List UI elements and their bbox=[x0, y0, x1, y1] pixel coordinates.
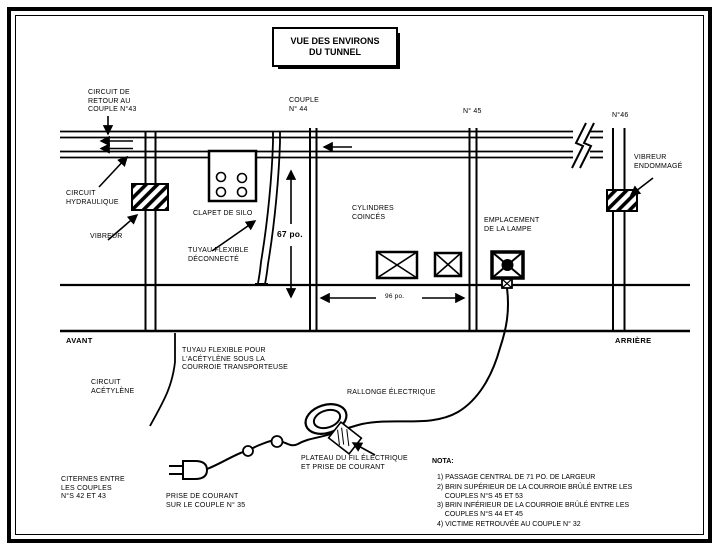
label-arriere: ARRIÈRE bbox=[615, 337, 652, 346]
plug-icon bbox=[169, 461, 207, 479]
label-cylindres-coinces: CYLINDRES COINCÉS bbox=[352, 205, 394, 222]
nota-item-2: 2) BRIN SUPÉRIEUR DE LA COURROIE BRÛLÉ E… bbox=[437, 484, 705, 502]
break-symbol bbox=[572, 123, 594, 168]
label-rallonge-electrique: RALLONGE ÉLECTRIQUE bbox=[347, 389, 436, 398]
label-emplacement-lampe: EMPLACEMENT DE LA LAMPE bbox=[484, 217, 540, 234]
cord-loop-small-1 bbox=[272, 436, 283, 447]
lamp-box bbox=[492, 252, 523, 288]
cylinder-box-1 bbox=[377, 252, 417, 278]
nota-title: NOTA: bbox=[432, 458, 454, 465]
label-dim-67po: 67 po. bbox=[275, 229, 305, 240]
label-circuit-acetylene: CIRCUIT ACÉTYLÈNE bbox=[91, 379, 134, 396]
flow-arrows bbox=[101, 141, 352, 149]
nota-list: 1) PASSAGE CENTRAL DE 71 PO. DE LARGEUR … bbox=[437, 474, 705, 531]
label-tuyau-acetylene: TUYAU FLEXIBLE POUR L'ACÉTYLÈNE SOUS LA … bbox=[182, 347, 288, 373]
label-couple-44: COUPLE N° 44 bbox=[289, 97, 319, 114]
label-avant: AVANT bbox=[66, 337, 93, 346]
flexible-hose bbox=[255, 131, 280, 284]
label-citernes: CITERNES ENTRE LES COUPLES N°S 42 ET 43 bbox=[61, 476, 125, 502]
label-prise-courant: PRISE DE COURANT SUR LE COUPLE N° 35 bbox=[166, 493, 245, 510]
label-vibreur-endommage: VIBREUR ENDOMMAGÉ bbox=[634, 154, 682, 171]
vibreur-box-left bbox=[132, 184, 168, 210]
conveyor-lines bbox=[60, 132, 603, 158]
label-plateau: PLATEAU DU FIL ÉLECTRIQUE ET PRISE DE CO… bbox=[301, 455, 408, 472]
nota-item-3: 3) BRIN INFÉRIEUR DE LA COURROIE BRÛLÉ E… bbox=[437, 502, 705, 520]
diagram-title: VUE DES ENVIRONS DU TUNNEL bbox=[272, 27, 398, 67]
label-couple-46: N°46 bbox=[612, 112, 628, 121]
label-dim-96po: 96 po. bbox=[383, 293, 406, 302]
acetylene-line bbox=[150, 333, 175, 426]
silo-box bbox=[209, 151, 256, 201]
label-tuyau-deconnecte: TUYAU FLEXIBLE DÉCONNECTÉ bbox=[188, 247, 249, 264]
label-clapet-de-silo: CLAPET DE SILO bbox=[193, 210, 252, 219]
diagram-page: VUE DES ENVIRONS DU TUNNEL CIRCUIT DE RE… bbox=[0, 0, 719, 550]
label-vibreur: VIBREUR bbox=[90, 233, 123, 242]
label-circuit-hydraulique: CIRCUIT HYDRAULIQUE bbox=[66, 190, 119, 207]
nota-item-1: 1) PASSAGE CENTRAL DE 71 PO. DE LARGEUR bbox=[437, 474, 705, 483]
cylinder-box-2 bbox=[435, 253, 461, 276]
label-couple-45: N° 45 bbox=[463, 108, 482, 117]
cord-loop-small-2 bbox=[243, 446, 253, 456]
nota-item-4: 4) VICTIME RETROUVÉE AU COUPLE N° 32 bbox=[437, 521, 705, 530]
label-circuit-retour: CIRCUIT DE RETOUR AU COUPLE N°43 bbox=[88, 89, 137, 115]
